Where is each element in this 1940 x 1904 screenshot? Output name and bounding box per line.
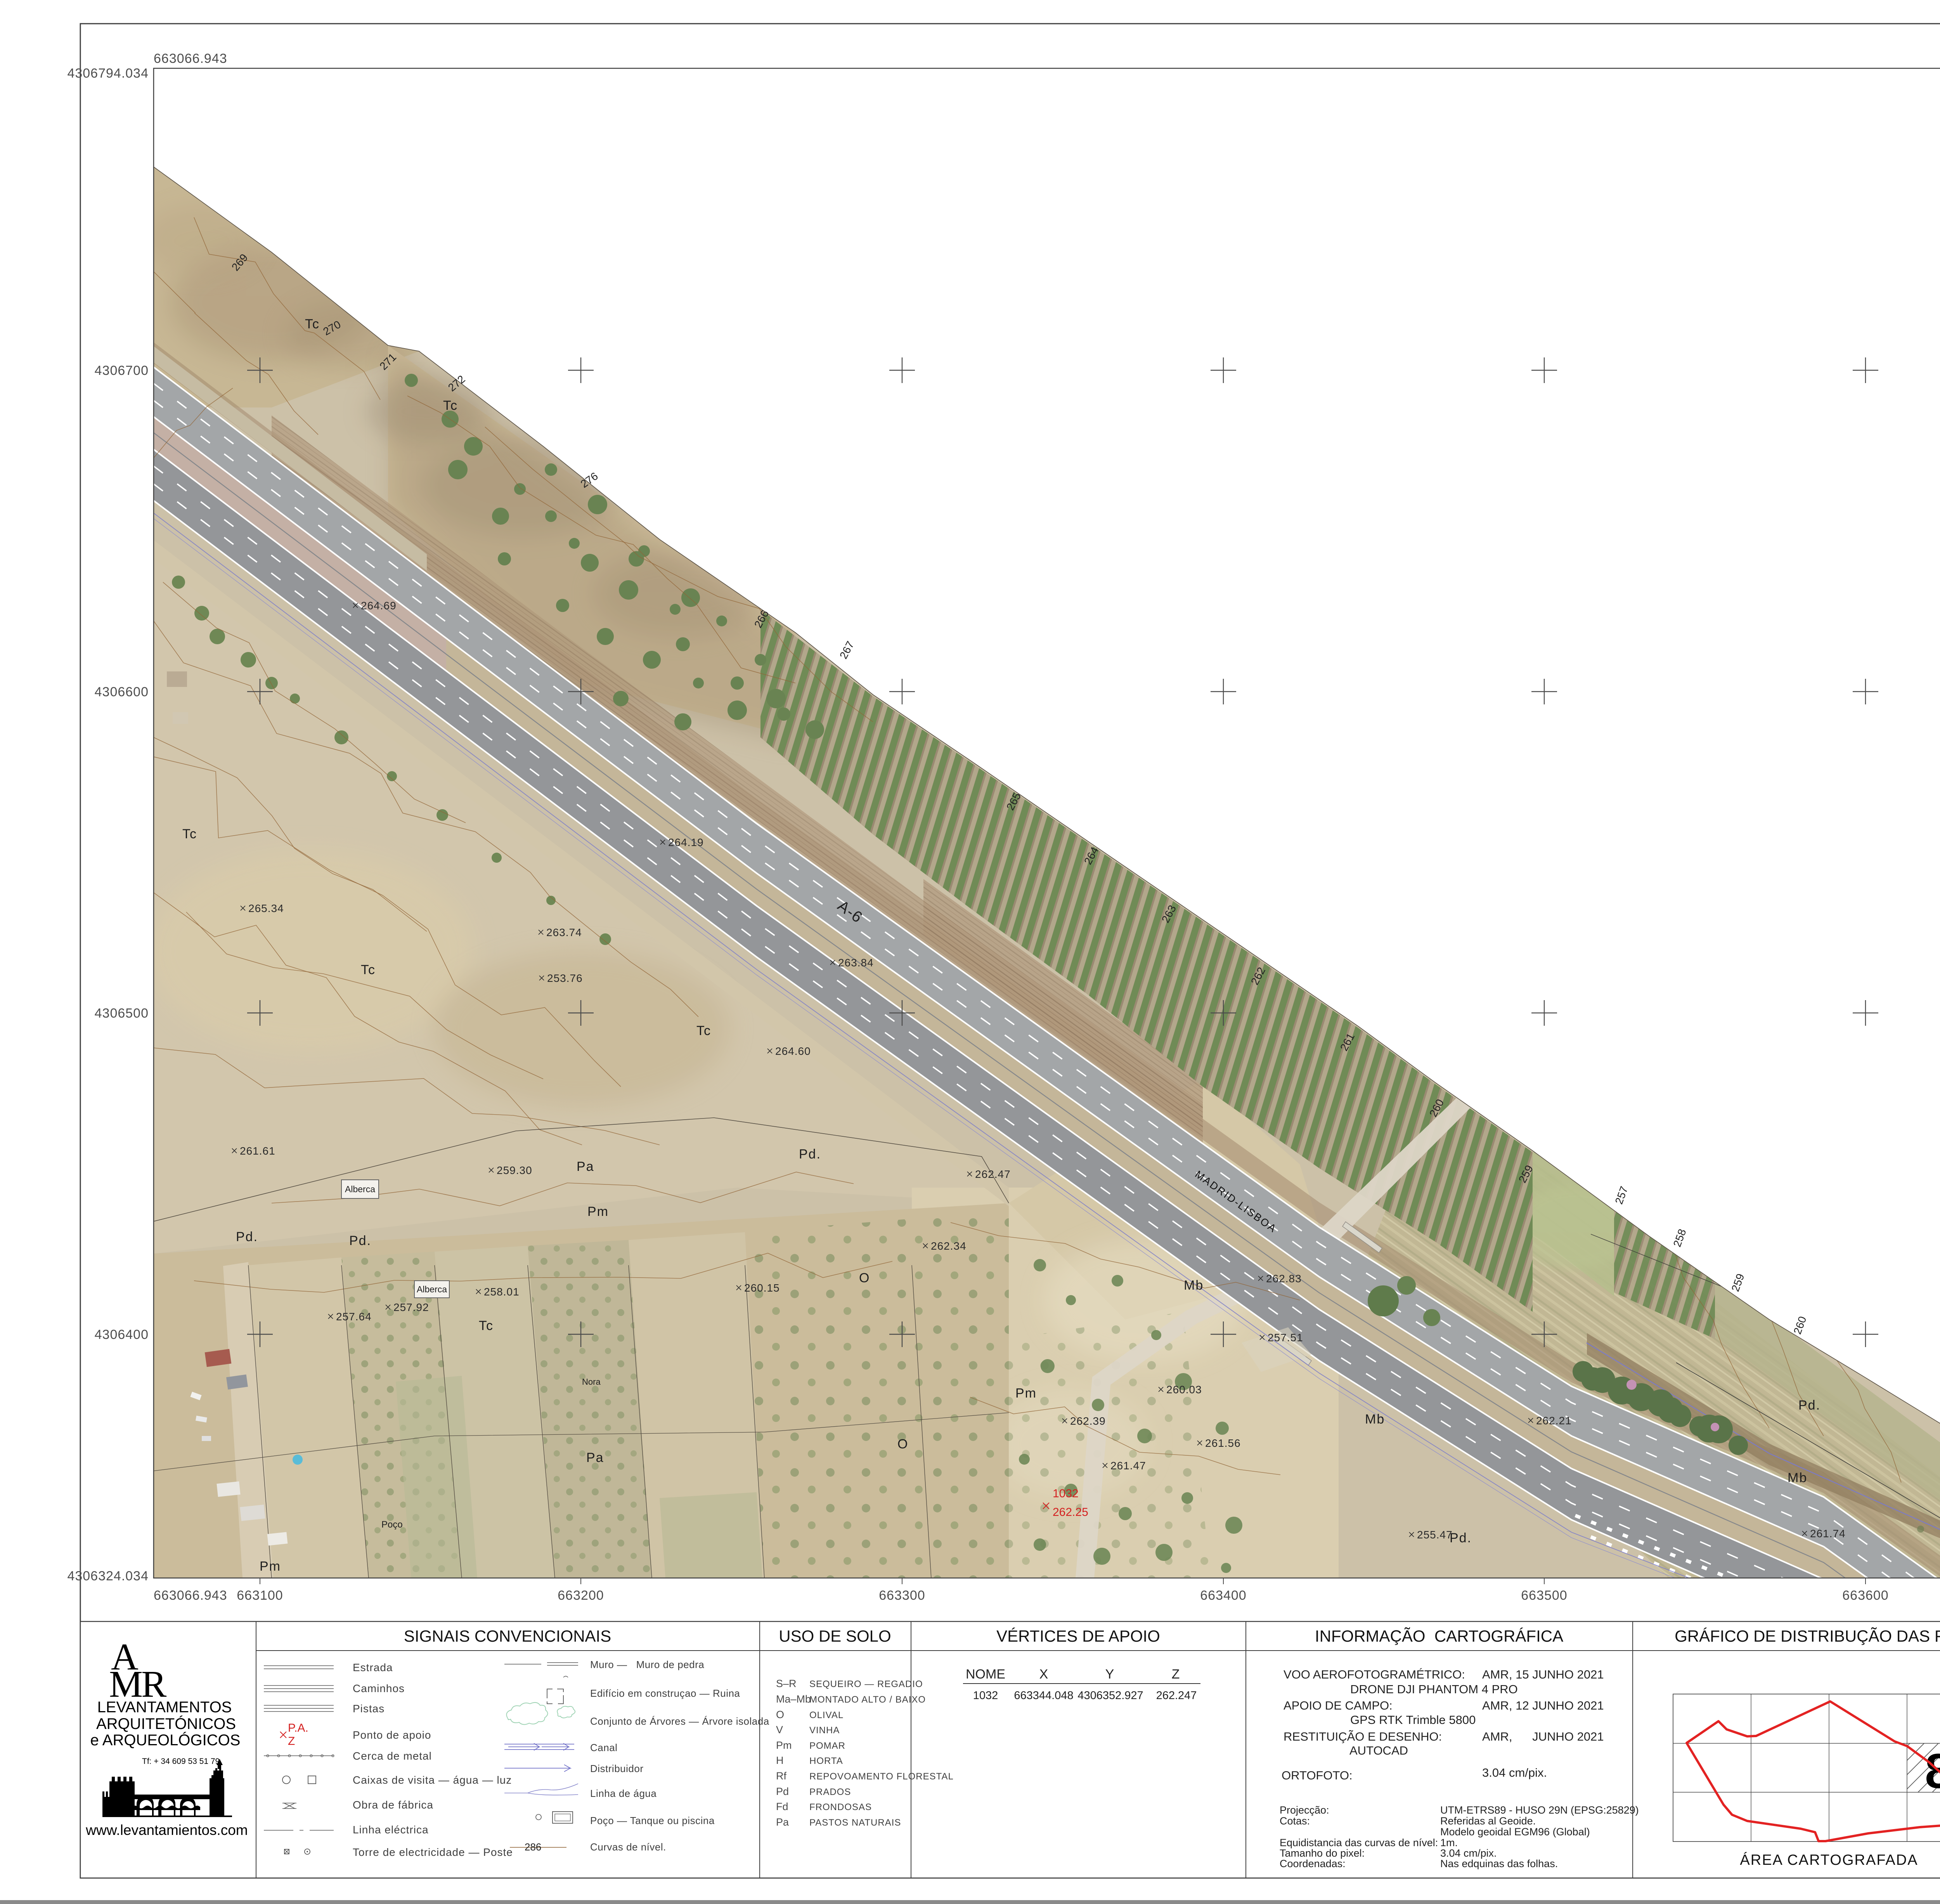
svg-text:NOME: NOME — [966, 1667, 1005, 1682]
svg-text:Tamanho do pixel:: Tamanho do pixel: — [1280, 1847, 1365, 1859]
svg-text:263.74: 263.74 — [546, 926, 582, 938]
svg-text:www.levantamientos.com: www.levantamientos.com — [85, 1822, 248, 1838]
svg-text:Pistas: Pistas — [353, 1703, 385, 1715]
svg-text:AMR, 12 JUNHO 2021: AMR, 12 JUNHO 2021 — [1482, 1699, 1604, 1712]
svg-text:Coordenadas:: Coordenadas: — [1280, 1858, 1346, 1869]
svg-text:Tc: Tc — [182, 827, 197, 841]
svg-text:Pd.: Pd. — [1798, 1398, 1820, 1413]
svg-text:Ponto de apoio: Ponto de apoio — [353, 1729, 431, 1741]
svg-text:663066.943: 663066.943 — [154, 1588, 227, 1603]
svg-text:Pd.: Pd. — [349, 1233, 371, 1248]
svg-text:663400: 663400 — [1200, 1588, 1246, 1603]
svg-text:Cerca de metal: Cerca de metal — [353, 1750, 432, 1762]
svg-text:Edifício em construçao — Ruina: Edifício em construçao — Ruina — [590, 1687, 740, 1699]
svg-text:263.84: 263.84 — [838, 957, 874, 969]
svg-text:261.74: 261.74 — [1810, 1528, 1846, 1540]
svg-text:262.47: 262.47 — [975, 1168, 1011, 1180]
svg-text:RESTITUIÇÃO E DESENHO:: RESTITUIÇÃO E DESENHO: — [1284, 1730, 1442, 1743]
svg-text:663300: 663300 — [879, 1588, 925, 1603]
svg-text:REPOVOAMENTO FLORESTAL: REPOVOAMENTO FLORESTAL — [809, 1771, 954, 1782]
svg-text:Linha de água: Linha de água — [590, 1788, 656, 1799]
svg-text:e ARQUEOLÓGICOS: e ARQUEOLÓGICOS — [90, 1731, 241, 1749]
svg-text:255.47: 255.47 — [1417, 1529, 1453, 1541]
svg-text:264.60: 264.60 — [775, 1045, 811, 1057]
svg-text:OLIVAL: OLIVAL — [809, 1710, 844, 1720]
svg-text:257.64: 257.64 — [336, 1311, 372, 1323]
svg-text:262.247: 262.247 — [1156, 1689, 1197, 1702]
svg-text:4306400: 4306400 — [95, 1327, 149, 1342]
svg-text:Canal: Canal — [590, 1742, 617, 1753]
svg-text:MONTADO ALTO / BAIXO: MONTADO ALTO / BAIXO — [809, 1694, 926, 1705]
svg-text:Pm: Pm — [1015, 1386, 1037, 1401]
svg-text:4306324.034: 4306324.034 — [67, 1569, 149, 1583]
svg-text:Pd.: Pd. — [1450, 1531, 1472, 1545]
svg-text:Z: Z — [1172, 1667, 1180, 1682]
svg-text:Obra de fábrica: Obra de fábrica — [353, 1799, 433, 1811]
svg-text:663200: 663200 — [558, 1588, 604, 1603]
svg-text:4306352.927: 4306352.927 — [1077, 1689, 1143, 1702]
svg-text:Caixas de visita — água — luz: Caixas de visita — água — luz — [353, 1774, 512, 1786]
svg-text:HORTA: HORTA — [809, 1756, 843, 1766]
svg-text:VINHA: VINHA — [809, 1725, 840, 1736]
svg-text:INFORMAÇÃO CARTOGRÁFICA: INFORMAÇÃO CARTOGRÁFICA — [1315, 1627, 1563, 1645]
svg-text:Pm: Pm — [587, 1204, 609, 1219]
svg-text:257.51: 257.51 — [1268, 1332, 1303, 1344]
svg-text:262.83: 262.83 — [1266, 1273, 1302, 1285]
svg-text:Tc: Tc — [361, 962, 376, 977]
svg-text:Rf: Rf — [776, 1770, 786, 1782]
svg-text:Projecção:: Projecção: — [1280, 1804, 1329, 1816]
svg-text:ORTOFOTO:: ORTOFOTO: — [1282, 1769, 1353, 1782]
svg-text:Alberca: Alberca — [417, 1284, 447, 1294]
svg-text:4306500: 4306500 — [95, 1006, 149, 1021]
svg-text:ARQUITETÓNICOS: ARQUITETÓNICOS — [96, 1715, 236, 1732]
svg-text:663100: 663100 — [237, 1588, 283, 1603]
svg-text:260.15: 260.15 — [744, 1282, 780, 1294]
svg-text:Fd: Fd — [776, 1801, 788, 1812]
svg-text:Alberca: Alberca — [345, 1184, 375, 1194]
svg-text:4306700: 4306700 — [95, 363, 149, 378]
svg-text:ÁREA CARTOGRAFADA: ÁREA CARTOGRAFADA — [1740, 1852, 1918, 1868]
svg-text:UTM-ETRS89 - HUSO 29N (EPSG:25: UTM-ETRS89 - HUSO 29N (EPSG:25829) — [1440, 1804, 1639, 1816]
svg-text:X: X — [1039, 1667, 1048, 1682]
svg-text:Muro — Muro de pedra: Muro — Muro de pedra — [590, 1659, 704, 1670]
svg-text:262.25: 262.25 — [1053, 1506, 1088, 1519]
svg-text:SIGNAIS CONVENCIONAIS: SIGNAIS CONVENCIONAIS — [404, 1627, 611, 1645]
svg-text:3.04 cm/pix.: 3.04 cm/pix. — [1440, 1847, 1497, 1859]
svg-text:Mb: Mb — [1184, 1278, 1204, 1293]
svg-text:Cotas:: Cotas: — [1280, 1815, 1310, 1827]
svg-text:GRÁFICO DE DISTRIBUÇÃO DAS FOL: GRÁFICO DE DISTRIBUÇÃO DAS FOLHAS — [1675, 1627, 1940, 1645]
svg-text:Curvas de nível.: Curvas de nível. — [590, 1841, 666, 1853]
svg-text:265.34: 265.34 — [248, 902, 284, 914]
svg-text:Mb: Mb — [1788, 1470, 1807, 1485]
svg-text:1032: 1032 — [1053, 1487, 1079, 1500]
svg-text:LEVANTAMENTOS: LEVANTAMENTOS — [97, 1699, 232, 1716]
svg-text:Pd.: Pd. — [236, 1229, 258, 1244]
svg-text:PASTOS NATURAIS: PASTOS NATURAIS — [809, 1817, 901, 1828]
svg-text:DRONE DJI PHANTOM 4 PRO: DRONE DJI PHANTOM 4 PRO — [1350, 1682, 1518, 1696]
svg-text:1032: 1032 — [973, 1689, 998, 1702]
svg-text:264.69: 264.69 — [361, 600, 397, 612]
svg-text:Nas edquinas das folhas.: Nas edquinas das folhas. — [1440, 1858, 1558, 1869]
svg-text:258.01: 258.01 — [484, 1286, 520, 1298]
svg-text:1m.: 1m. — [1440, 1837, 1458, 1849]
svg-text:Equidistancia das curvas de ní: Equidistancia das curvas de nível: — [1280, 1837, 1438, 1849]
svg-text:P.A.: P.A. — [288, 1722, 308, 1734]
svg-text:Pa: Pa — [577, 1159, 594, 1174]
svg-text:AUTOCAD: AUTOCAD — [1349, 1744, 1408, 1757]
svg-text:262.34: 262.34 — [931, 1240, 967, 1252]
svg-text:Caminhos: Caminhos — [353, 1682, 405, 1694]
svg-text:663600: 663600 — [1842, 1588, 1888, 1603]
svg-text:286: 286 — [525, 1841, 541, 1853]
svg-text:4306794.034: 4306794.034 — [67, 66, 149, 81]
svg-text:261.61: 261.61 — [240, 1145, 275, 1157]
svg-text:261.56: 261.56 — [1205, 1437, 1241, 1449]
svg-text:4306600: 4306600 — [95, 685, 149, 699]
svg-text:O: O — [897, 1437, 908, 1451]
svg-text:Tc: Tc — [696, 1023, 711, 1038]
svg-text:257.92: 257.92 — [393, 1301, 429, 1313]
svg-text:Distribuidor: Distribuidor — [590, 1763, 644, 1774]
svg-text:AMR, 15 JUNHO 2021: AMR, 15 JUNHO 2021 — [1482, 1668, 1604, 1681]
svg-text:3.04 cm/pix.: 3.04 cm/pix. — [1482, 1766, 1547, 1779]
svg-text:V: V — [776, 1724, 783, 1736]
svg-text:264.19: 264.19 — [668, 836, 704, 848]
svg-text:259.30: 259.30 — [497, 1164, 532, 1176]
svg-text:Pd.: Pd. — [799, 1147, 821, 1162]
svg-text:Z: Z — [288, 1735, 295, 1748]
svg-text:Tc: Tc — [305, 317, 320, 331]
svg-text:663500: 663500 — [1521, 1588, 1567, 1603]
svg-text:PRADOS: PRADOS — [809, 1787, 851, 1797]
svg-text:Nora: Nora — [582, 1377, 601, 1387]
svg-text:O: O — [776, 1709, 784, 1720]
svg-text:Pa: Pa — [586, 1450, 604, 1465]
svg-text:253.76: 253.76 — [547, 972, 583, 984]
svg-text:O: O — [859, 1271, 870, 1285]
svg-text:Pa: Pa — [776, 1816, 789, 1828]
svg-text:Linha eléctrica: Linha eléctrica — [353, 1824, 429, 1836]
svg-text:APOIO DE CAMPO:: APOIO DE CAMPO: — [1284, 1699, 1393, 1712]
svg-text:260.03: 260.03 — [1166, 1384, 1202, 1396]
svg-text:262.39: 262.39 — [1070, 1415, 1106, 1427]
svg-text:FRONDOSAS: FRONDOSAS — [809, 1802, 872, 1812]
svg-text:Poço: Poço — [381, 1519, 403, 1530]
svg-text:GPS RTK Trimble 5800: GPS RTK Trimble 5800 — [1350, 1713, 1476, 1727]
svg-text:Pd: Pd — [776, 1786, 789, 1797]
svg-text:Conjunto de Árvores — Árvore i: Conjunto de Árvores — Árvore isolada — [590, 1715, 769, 1727]
svg-text:Tc: Tc — [443, 398, 458, 413]
svg-text:VOO AEROFOTOGRAMÉTRICO:: VOO AEROFOTOGRAMÉTRICO: — [1284, 1668, 1465, 1681]
svg-text:S–R: S–R — [776, 1678, 797, 1689]
svg-text:Mb: Mb — [1365, 1412, 1385, 1427]
svg-text:Pm: Pm — [260, 1559, 281, 1574]
svg-text:Pm: Pm — [776, 1739, 792, 1751]
svg-text:663344.048: 663344.048 — [1014, 1689, 1073, 1702]
svg-text:Ma–Mb: Ma–Mb — [776, 1693, 811, 1705]
svg-text:SEQUEIRO — REGADIO: SEQUEIRO — REGADIO — [809, 1679, 923, 1689]
svg-text:261.47: 261.47 — [1110, 1460, 1146, 1472]
svg-text:Referidas al Geoide.: Referidas al Geoide. — [1440, 1815, 1536, 1827]
svg-text:H: H — [776, 1755, 784, 1766]
svg-text:VÉRTICES DE APOIO: VÉRTICES DE APOIO — [996, 1627, 1160, 1645]
svg-text:Tf: + 34 609 53 51 79: Tf: + 34 609 53 51 79 — [142, 1757, 220, 1766]
svg-text:Modelo geoidal EGM96 (Global): Modelo geoidal EGM96 (Global) — [1440, 1826, 1590, 1838]
svg-text:Estrada: Estrada — [353, 1661, 393, 1673]
svg-text:Y: Y — [1105, 1667, 1114, 1682]
svg-text:POMAR: POMAR — [809, 1741, 845, 1751]
svg-text:Poço — Tanque ou piscina: Poço — Tanque ou piscina — [590, 1815, 715, 1826]
svg-text:USO DE SOLO: USO DE SOLO — [779, 1627, 891, 1645]
svg-text:262.21: 262.21 — [1536, 1415, 1572, 1427]
svg-text:663066.943: 663066.943 — [154, 51, 227, 66]
svg-text:Torre de electricidade — Poste: Torre de electricidade — Poste — [353, 1846, 513, 1858]
svg-text:AMR, JUNHO 2021: AMR, JUNHO 2021 — [1482, 1730, 1604, 1743]
svg-text:Tc: Tc — [479, 1318, 494, 1333]
